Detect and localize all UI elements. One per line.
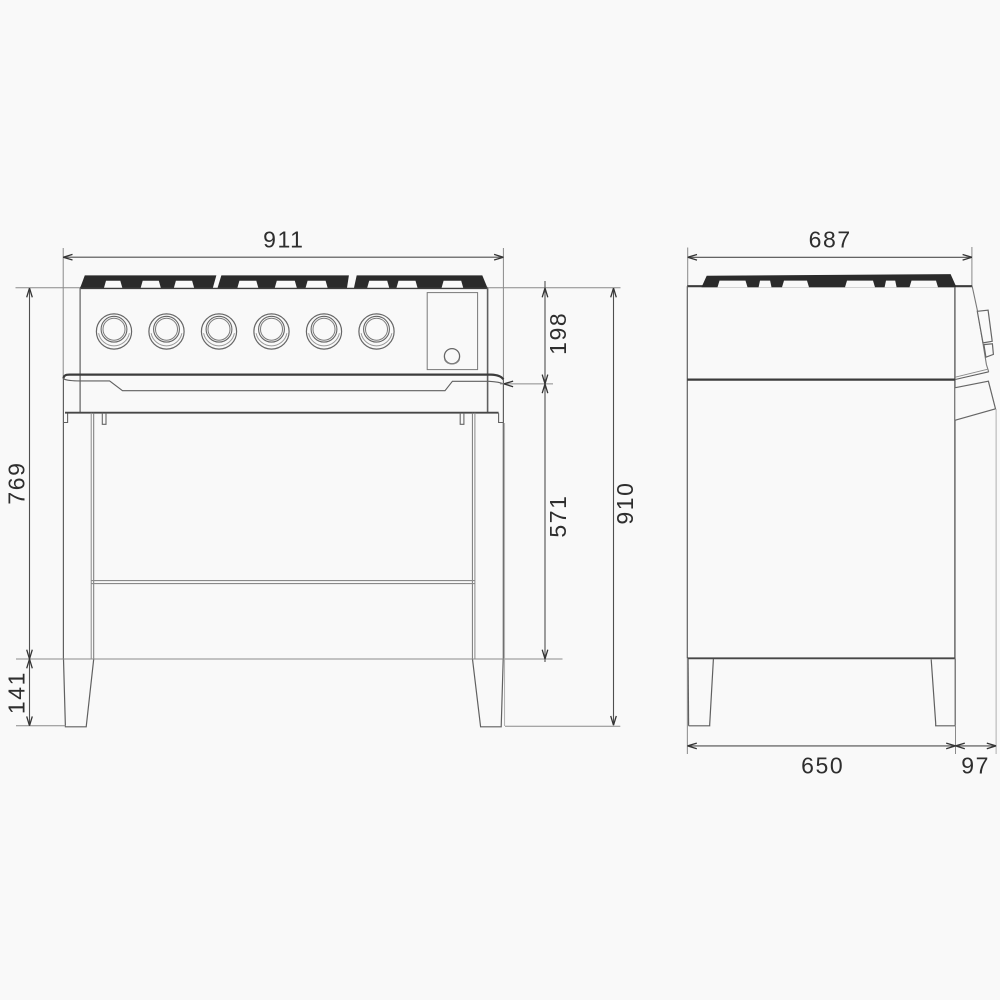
svg-text:650: 650 xyxy=(801,753,844,779)
svg-text:198: 198 xyxy=(545,312,571,355)
svg-text:97: 97 xyxy=(961,753,990,779)
svg-text:769: 769 xyxy=(4,461,30,504)
svg-text:571: 571 xyxy=(545,494,571,537)
svg-text:911: 911 xyxy=(263,226,304,252)
svg-text:910: 910 xyxy=(612,481,638,524)
svg-text:141: 141 xyxy=(4,671,30,714)
svg-text:687: 687 xyxy=(809,227,852,253)
